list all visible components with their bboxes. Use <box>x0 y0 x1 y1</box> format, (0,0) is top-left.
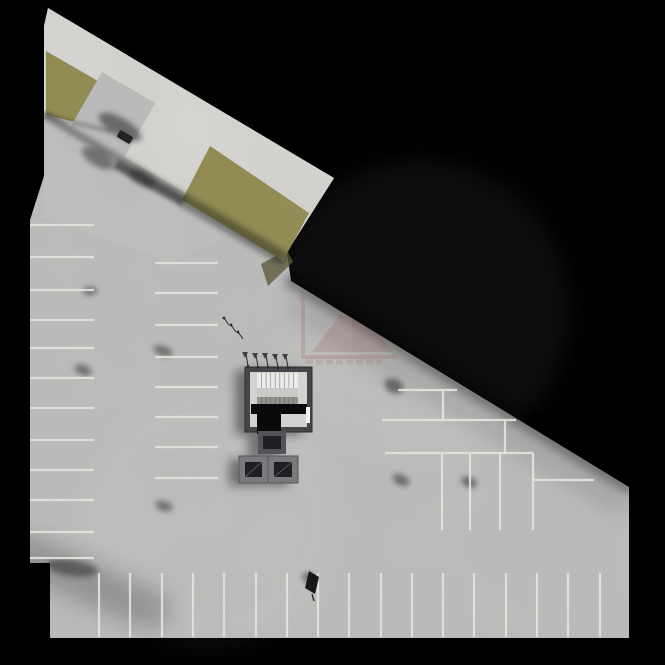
sprinkler-base <box>267 366 269 368</box>
sprinkler-base <box>287 367 289 369</box>
elevator-pit <box>257 413 281 434</box>
render-viewport <box>0 0 665 665</box>
core-door <box>306 407 310 423</box>
vent-box-opening <box>263 436 281 449</box>
sprinkler-base <box>257 366 259 368</box>
sprinkler-base <box>277 367 279 369</box>
stair-flight <box>257 397 298 404</box>
elevator-pit <box>251 404 307 414</box>
parking-plan-render <box>0 0 665 665</box>
sprinkler-base <box>247 365 249 367</box>
stair-landing <box>257 388 298 397</box>
stair-flight <box>257 373 298 388</box>
